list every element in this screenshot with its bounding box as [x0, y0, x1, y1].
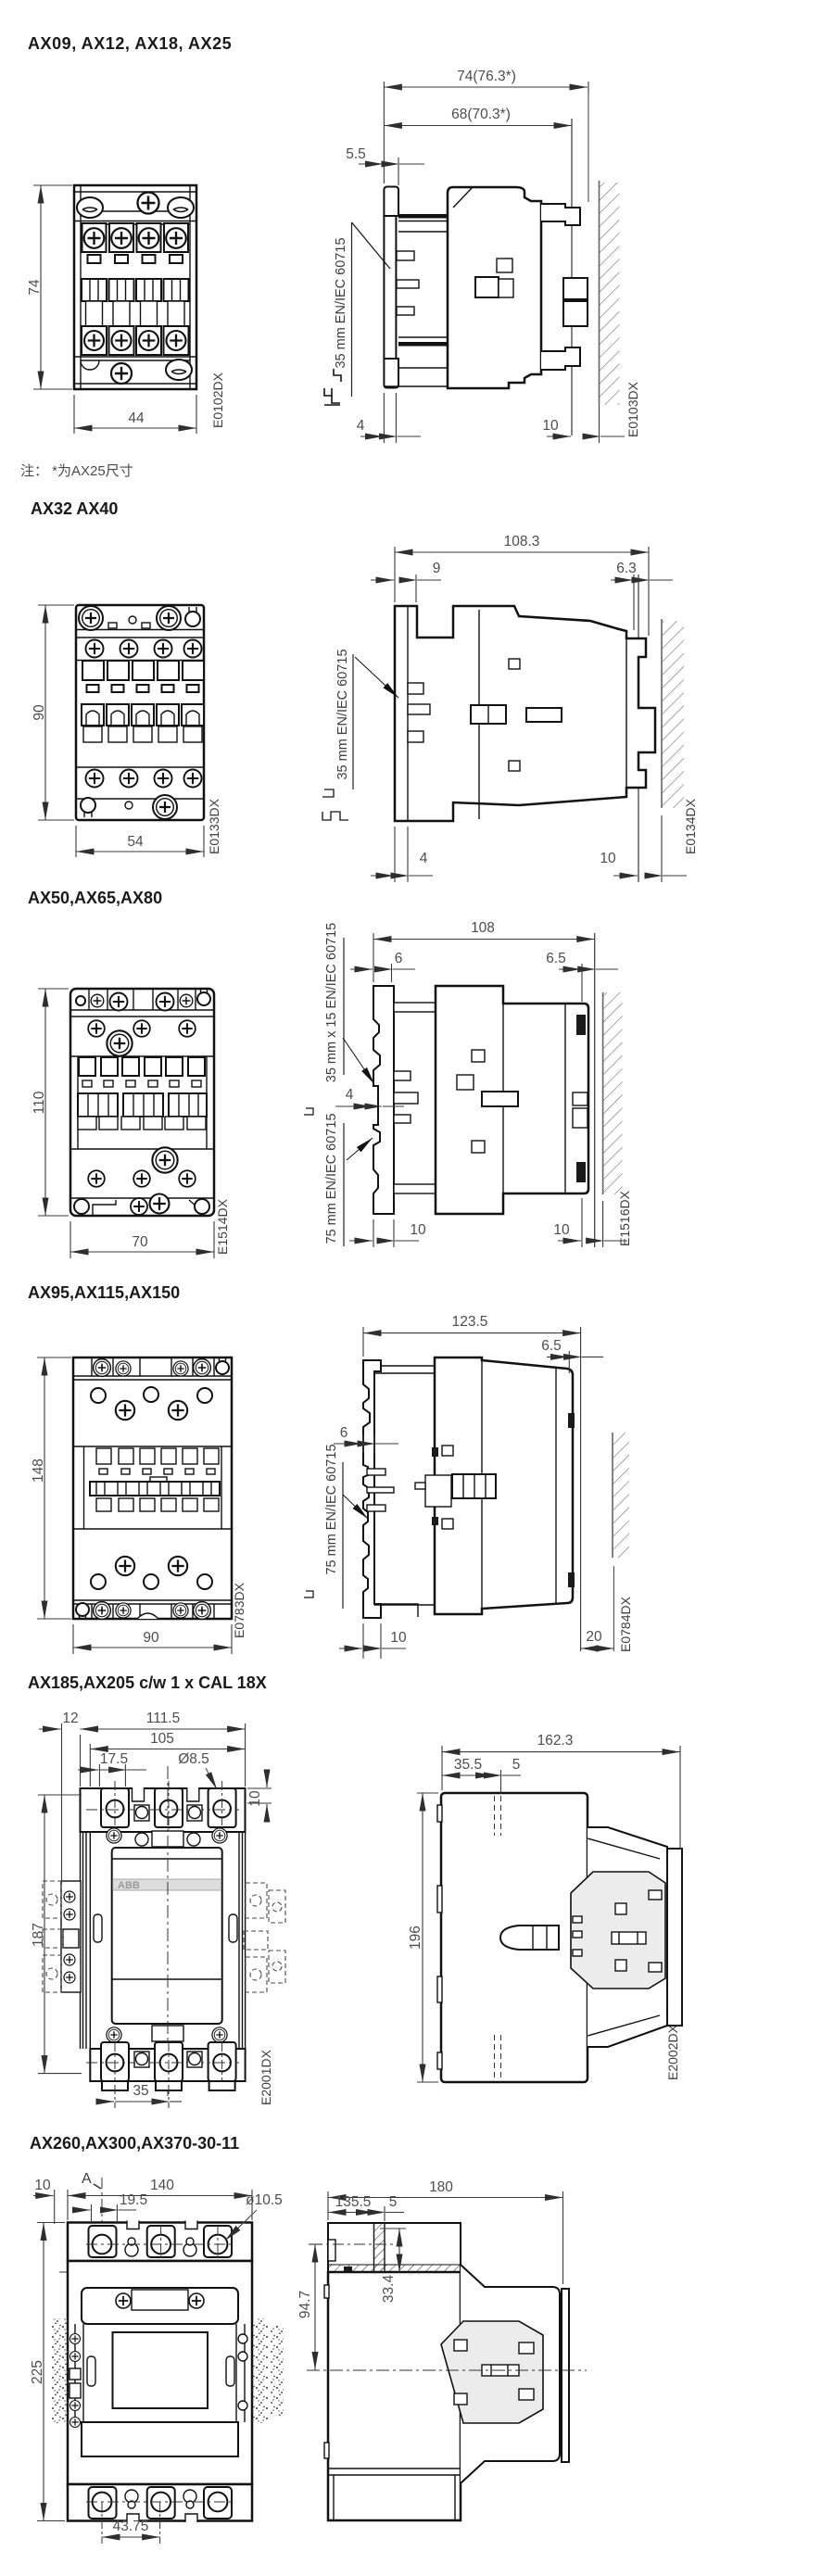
svg-text:44: 44	[128, 410, 145, 426]
svg-text:140: 140	[150, 2178, 174, 2193]
svg-text:111.5: 111.5	[146, 1711, 181, 1726]
svg-text:AX260,AX300,AX370-30-11: AX260,AX300,AX370-30-11	[30, 2134, 239, 2153]
svg-text:4: 4	[357, 418, 365, 434]
svg-text:10: 10	[247, 1790, 263, 1807]
svg-text:94.7: 94.7	[297, 2291, 313, 2318]
svg-text:注： *为AX25尺寸: 注： *为AX25尺寸	[20, 463, 133, 479]
svg-text:74(76.3*): 74(76.3*)	[457, 69, 516, 84]
svg-text:5: 5	[389, 2194, 398, 2210]
svg-text:35 mm EN/IEC 60715: 35 mm EN/IEC 60715	[335, 649, 350, 779]
svg-text:ø10.5: ø10.5	[246, 2192, 283, 2208]
svg-text:180: 180	[429, 2179, 453, 2195]
svg-text:6.3: 6.3	[616, 561, 637, 576]
svg-text:E0784DX: E0784DX	[618, 1596, 633, 1652]
svg-text:187: 187	[31, 1923, 46, 1947]
svg-text:110: 110	[32, 1091, 47, 1114]
svg-text:225: 225	[30, 2360, 45, 2384]
svg-text:A: A	[82, 2171, 92, 2187]
svg-text:35 mm x 15 EN/IEC 60715: 35 mm x 15 EN/IEC 60715	[324, 923, 339, 1082]
svg-text:6: 6	[340, 1425, 348, 1441]
svg-text:E0103DX: E0103DX	[625, 381, 640, 437]
svg-text:162.3: 162.3	[537, 1733, 574, 1749]
svg-text:E1514DX: E1514DX	[215, 1198, 230, 1255]
svg-text:33.4: 33.4	[381, 2275, 397, 2304]
svg-text:75 mm EN/IEC 60715: 75 mm EN/IEC 60715	[324, 1444, 339, 1574]
svg-text:E2001DX: E2001DX	[259, 2049, 273, 2105]
svg-text:6.5: 6.5	[541, 1338, 562, 1354]
svg-text:90: 90	[143, 1630, 159, 1646]
svg-text:4: 4	[346, 1087, 354, 1103]
svg-text:9: 9	[433, 561, 441, 576]
svg-text:E0134DX: E0134DX	[683, 798, 698, 854]
svg-text:AX32 AX40: AX32 AX40	[31, 499, 118, 518]
svg-text:5.5: 5.5	[346, 146, 366, 162]
svg-text:148: 148	[31, 1458, 46, 1483]
svg-text:35.5: 35.5	[454, 1757, 482, 1773]
svg-text:10: 10	[390, 1630, 407, 1646]
svg-text:6: 6	[395, 951, 403, 966]
svg-text:AX185,AX205 c/w 1 x CAL 18X: AX185,AX205 c/w 1 x CAL 18X	[28, 1673, 267, 1692]
svg-text:196: 196	[408, 1926, 423, 1950]
svg-text:135.5: 135.5	[335, 2194, 372, 2210]
svg-text:75 mm EN/IEC 60715: 75 mm EN/IEC 60715	[324, 1113, 339, 1244]
svg-text:108: 108	[471, 920, 495, 936]
svg-text:54: 54	[127, 834, 144, 850]
svg-text:Ø8.5: Ø8.5	[178, 1751, 209, 1767]
svg-text:E0133DX: E0133DX	[207, 798, 221, 854]
svg-text:E2002DX: E2002DX	[665, 2024, 680, 2080]
svg-text:108.3: 108.3	[504, 534, 540, 549]
svg-text:E0783DX: E0783DX	[232, 1582, 246, 1638]
svg-text:E1516DX: E1516DX	[617, 1190, 632, 1246]
svg-text:10: 10	[553, 1222, 570, 1238]
svg-text:35 mm EN/IEC 60715: 35 mm EN/IEC 60715	[334, 237, 348, 368]
svg-text:5: 5	[512, 1757, 521, 1773]
svg-text:4: 4	[420, 851, 428, 866]
svg-text:10: 10	[600, 851, 616, 866]
svg-text:68(70.3*): 68(70.3*)	[451, 107, 511, 122]
svg-text:105: 105	[150, 1731, 174, 1747]
svg-text:20: 20	[586, 1629, 602, 1645]
svg-text:74: 74	[27, 279, 43, 296]
svg-text:E0102DX: E0102DX	[210, 372, 225, 428]
svg-text:123.5: 123.5	[452, 1314, 488, 1330]
svg-text:10: 10	[410, 1222, 426, 1238]
svg-text:19.5: 19.5	[120, 2192, 147, 2208]
svg-text:90: 90	[32, 704, 47, 721]
svg-text:AX09, AX12, AX18, AX25: AX09, AX12, AX18, AX25	[28, 34, 232, 53]
svg-text:10: 10	[34, 2178, 51, 2193]
svg-text:35: 35	[133, 2083, 148, 2099]
svg-text:10: 10	[542, 418, 559, 434]
svg-text:6.5: 6.5	[546, 951, 566, 966]
svg-text:70: 70	[132, 1234, 148, 1250]
svg-text:12: 12	[62, 1711, 78, 1726]
svg-text:AX95,AX115,AX150: AX95,AX115,AX150	[28, 1283, 180, 1302]
svg-text:43.75: 43.75	[113, 2519, 149, 2534]
svg-text:ABB: ABB	[118, 1880, 140, 1891]
svg-text:AX50,AX65,AX80: AX50,AX65,AX80	[28, 889, 162, 907]
svg-text:17.5: 17.5	[100, 1751, 128, 1767]
